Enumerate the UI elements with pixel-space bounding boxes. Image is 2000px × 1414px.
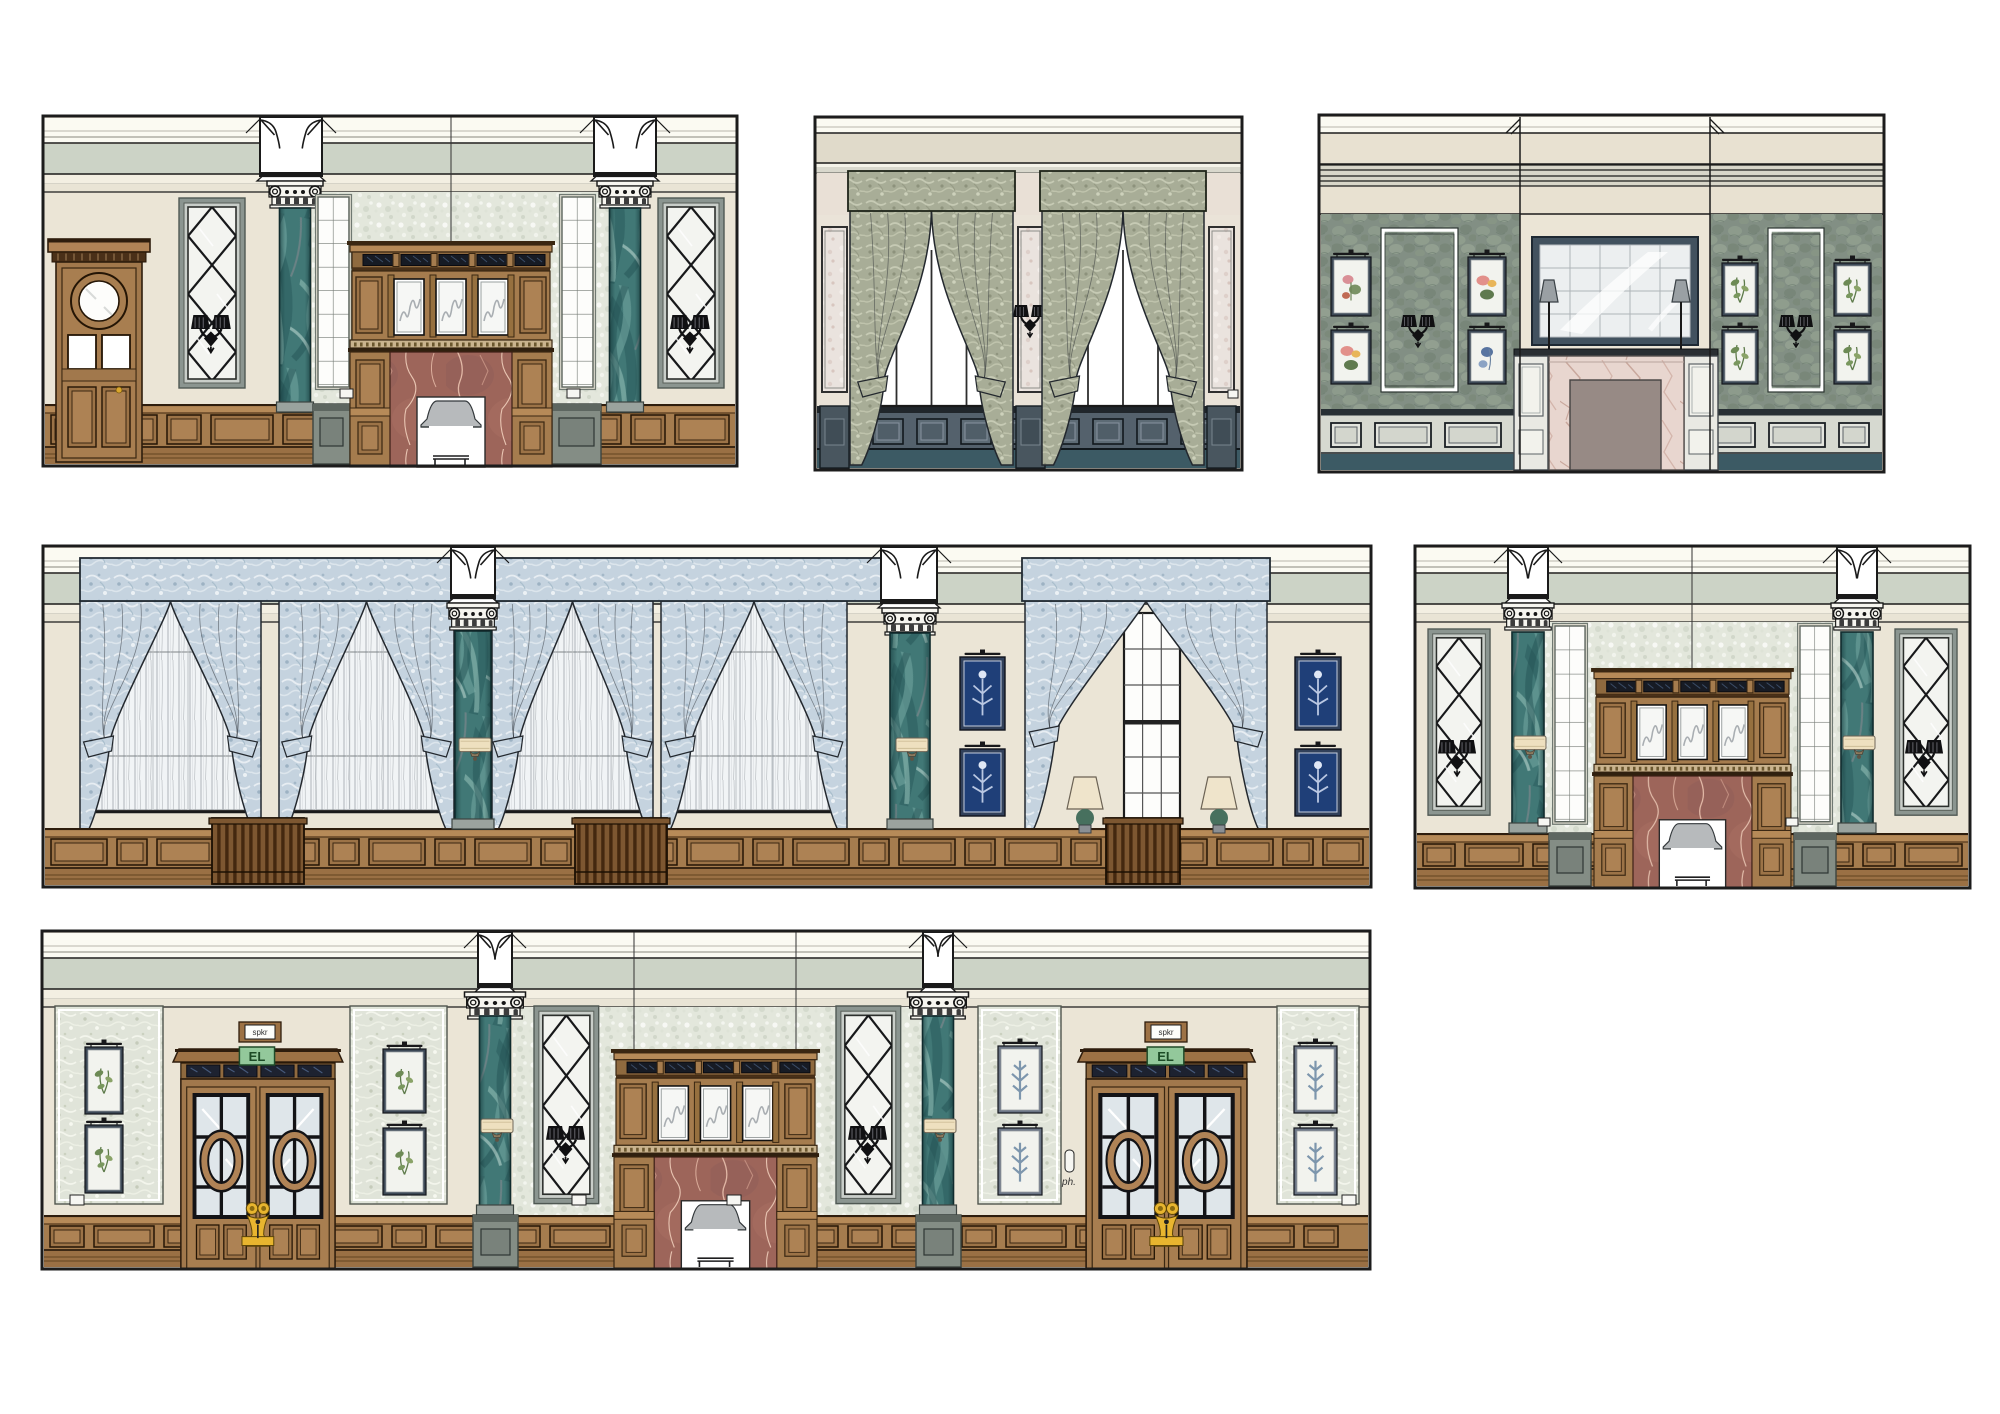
svg-text:EL: EL <box>1157 1049 1174 1064</box>
svg-text:ph.: ph. <box>1061 1177 1076 1188</box>
svg-text:EL: EL <box>249 1049 266 1064</box>
